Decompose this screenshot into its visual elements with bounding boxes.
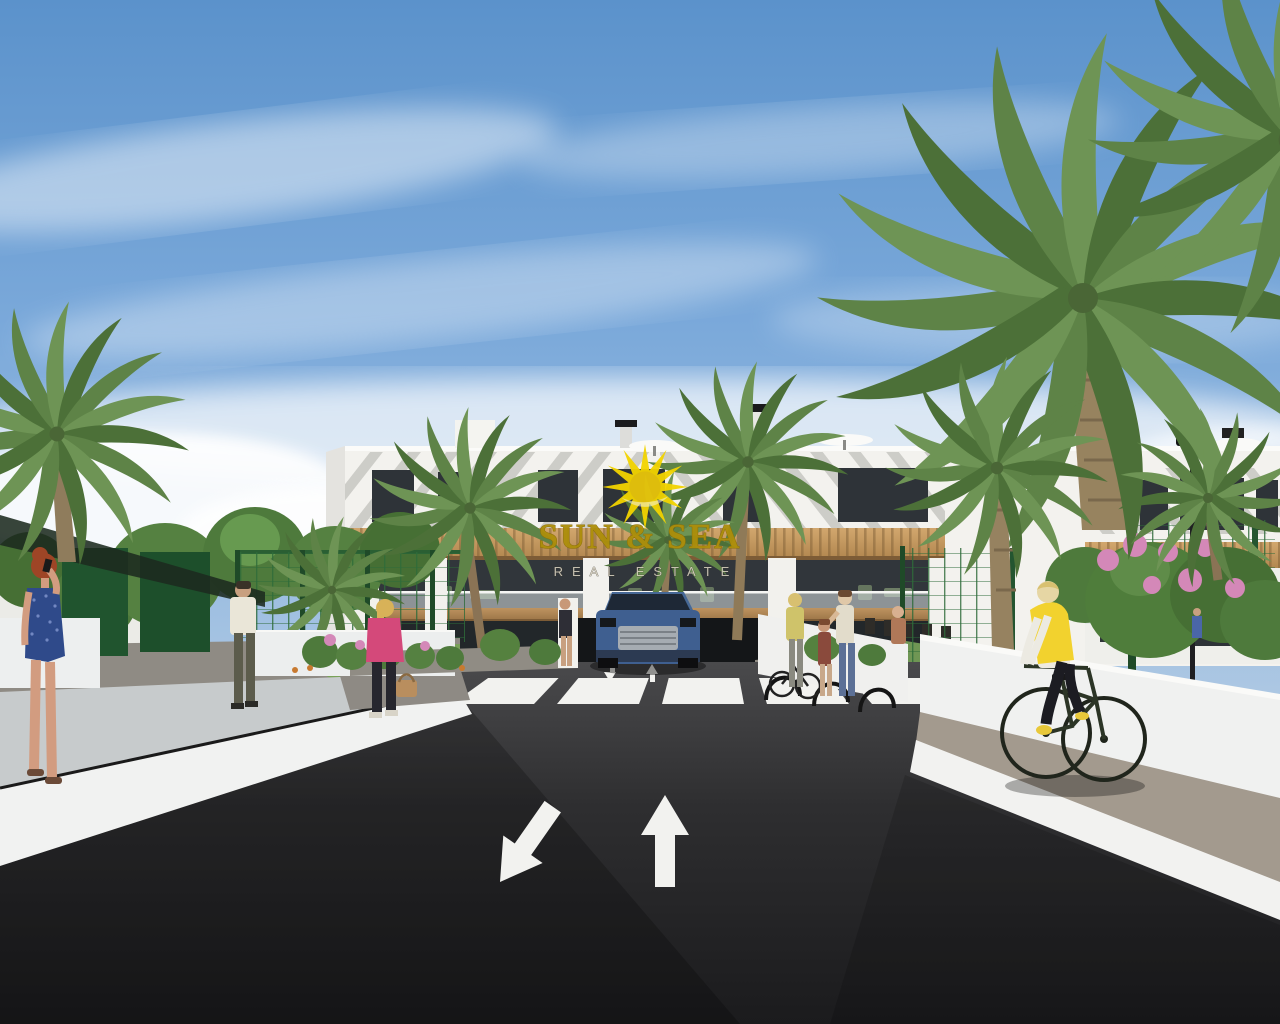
watermark-subtitle: REAL ESTATE [554,564,739,579]
blue-suv [590,592,706,675]
scene-canvas: SUN & SEA REAL ESTATE [0,0,1280,1024]
distant-person-blue [1192,608,1202,638]
seated-person [891,606,906,644]
watermark-title: SUN & SEA [539,517,742,556]
render-scene: SUN & SEA REAL ESTATE [0,0,1280,1024]
windshield [606,594,690,610]
handbag [396,680,417,697]
